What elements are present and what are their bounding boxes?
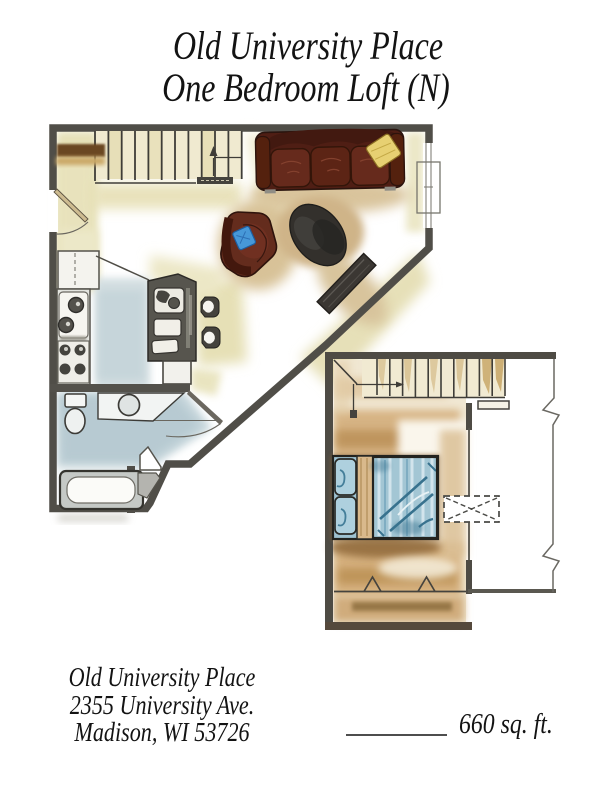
svg-text:2355 University Ave.: 2355 University Ave.	[70, 691, 255, 721]
svg-text:Old University Place: Old University Place	[69, 663, 256, 693]
svg-text:Madison, WI 53726: Madison, WI 53726	[74, 718, 251, 748]
svg-text:660 sq. ft.: 660 sq. ft.	[459, 708, 553, 739]
svg-text:Old University Place: Old University Place	[173, 24, 443, 68]
svg-text:One Bedroom Loft (N): One Bedroom Loft (N)	[162, 66, 450, 110]
